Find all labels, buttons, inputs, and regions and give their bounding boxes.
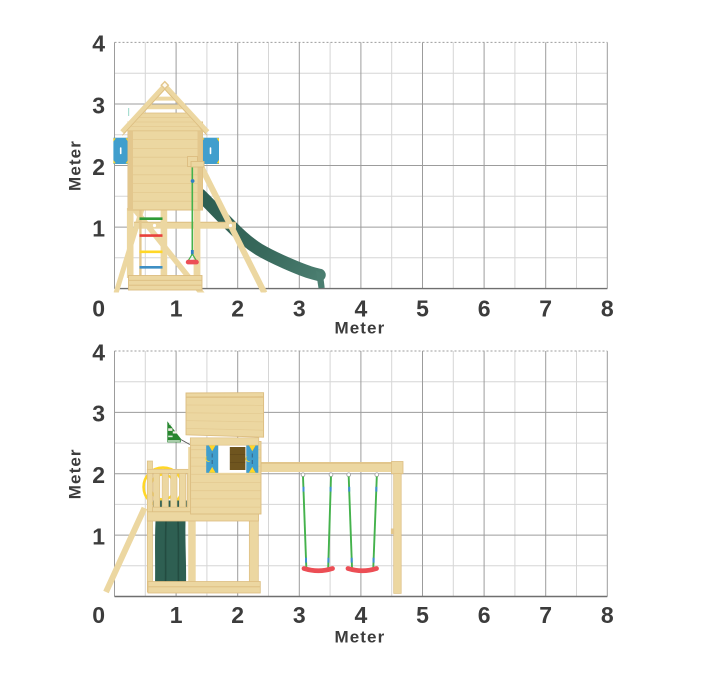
svg-text:1: 1 <box>92 523 105 549</box>
svg-text:6: 6 <box>478 602 491 628</box>
svg-text:Meter: Meter <box>334 318 385 337</box>
svg-text:Meter: Meter <box>66 448 85 499</box>
svg-text:1: 1 <box>92 215 105 241</box>
svg-text:0: 0 <box>92 295 105 321</box>
svg-text:2: 2 <box>92 154 105 180</box>
svg-text:8: 8 <box>601 602 614 628</box>
svg-text:4: 4 <box>92 339 105 365</box>
svg-text:Meter: Meter <box>334 627 385 646</box>
svg-text:2: 2 <box>231 602 244 628</box>
svg-text:1: 1 <box>170 602 183 628</box>
svg-text:7: 7 <box>539 295 552 321</box>
svg-text:3: 3 <box>92 92 105 118</box>
svg-text:5: 5 <box>416 602 429 628</box>
svg-text:0: 0 <box>92 602 105 628</box>
svg-text:4: 4 <box>355 602 368 628</box>
svg-text:3: 3 <box>293 602 306 628</box>
svg-text:Meter: Meter <box>66 140 85 191</box>
svg-text:5: 5 <box>416 295 429 321</box>
svg-text:3: 3 <box>293 295 306 321</box>
svg-text:8: 8 <box>601 295 614 321</box>
svg-text:3: 3 <box>92 401 105 427</box>
svg-text:2: 2 <box>92 462 105 488</box>
svg-text:2: 2 <box>231 295 244 321</box>
svg-text:6: 6 <box>478 295 491 321</box>
svg-text:7: 7 <box>539 602 552 628</box>
svg-text:4: 4 <box>92 31 105 57</box>
svg-text:1: 1 <box>170 295 183 321</box>
